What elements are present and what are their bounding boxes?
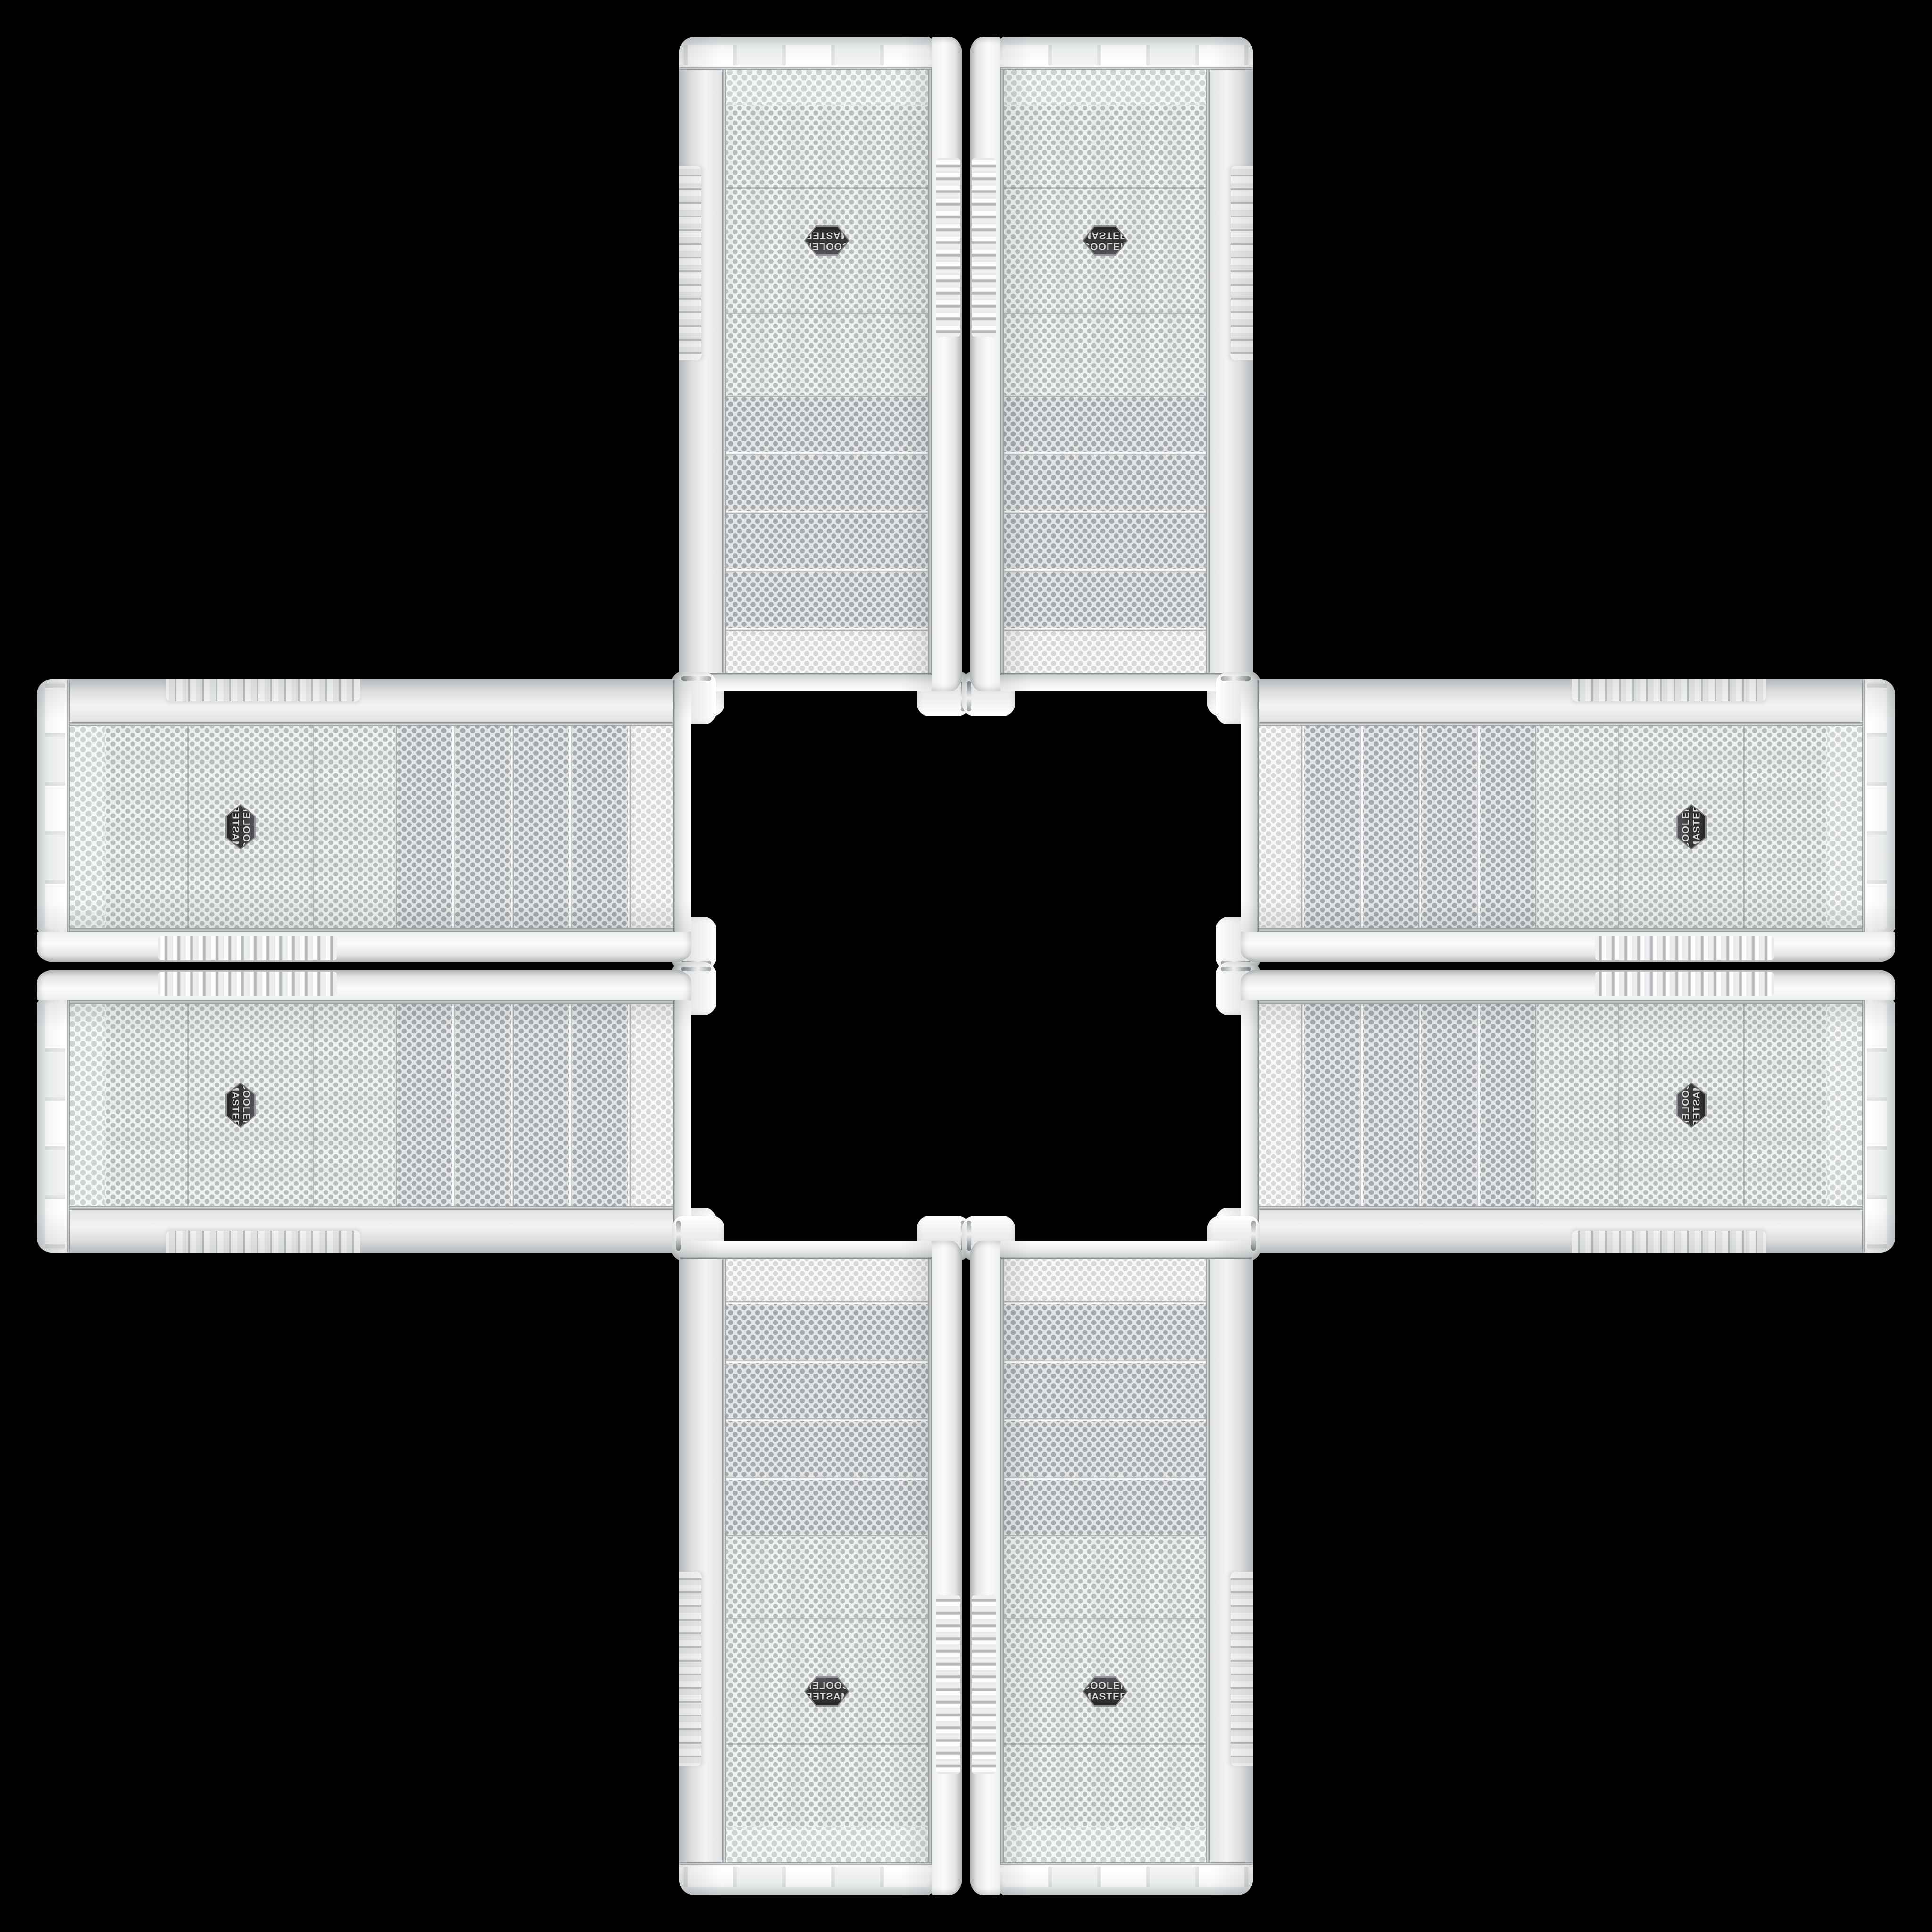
chrome-trim-right: [722, 64, 726, 678]
chrome-trim-left: [1000, 64, 1004, 678]
chrome-trim-right: [1206, 1254, 1210, 1868]
brand-line1: COOLER: [1681, 1083, 1691, 1128]
lower-mesh-panel: COOLER MASTER: [1537, 726, 1827, 928]
chrome-trim-left: [928, 64, 932, 678]
drive-bay-cover: [1004, 1303, 1206, 1361]
cooler-master-logo-badge: COOLER MASTER: [1083, 1676, 1128, 1707]
top-bezel: [1241, 1000, 1257, 1253]
pc-case-right-top: COOLER MASTER: [1241, 679, 1895, 962]
mesh-seam: [726, 1618, 928, 1619]
cooler-master-logo-icon: COOLER MASTER: [1084, 227, 1126, 254]
side-panel-sliver: [970, 1241, 1001, 1895]
side-panel-sliver: [931, 37, 962, 691]
bay-separator: [1301, 726, 1304, 928]
lower-mesh-panel: COOLER MASTER: [1537, 1004, 1827, 1206]
top-mesh-strip: [726, 1254, 928, 1303]
brand-line2: MASTER: [1083, 1692, 1128, 1702]
mesh-seam: [1743, 1004, 1745, 1206]
front-mesh-panel: COOLER MASTER: [1004, 1254, 1206, 1868]
drive-bay-cover: [1361, 726, 1420, 928]
side-grip-ridges: [158, 936, 337, 960]
case-front-body: COOLER MASTER: [679, 1241, 932, 1895]
chrome-trim-right: [64, 722, 678, 726]
pc-case-left-bottom: COOLER MASTER: [37, 970, 691, 1253]
case-front-body: COOLER MASTER: [1000, 1241, 1253, 1895]
lower-mesh-panel: COOLER MASTER: [105, 726, 395, 928]
drive-bay-cover: [726, 1361, 928, 1420]
front-bezel-column: [64, 679, 678, 722]
case-front-body: COOLER MASTER: [1241, 1000, 1895, 1253]
bottom-bezel: [1865, 1000, 1895, 1253]
bay-separator: [1477, 1004, 1480, 1206]
chrome-trim-right: [1254, 722, 1868, 726]
bay-separator: [628, 1004, 631, 1206]
side-grip-ridges: [972, 1595, 996, 1774]
bay-separator: [1004, 1477, 1206, 1480]
collage-stage: COOLER MASTER: [0, 0, 1932, 1932]
side-panel-sliver: [970, 37, 1001, 691]
front-bezel-column: [1210, 1254, 1253, 1868]
bottom-bezel: [37, 1000, 67, 1253]
bay-separator: [1360, 1004, 1363, 1206]
side-panel-sliver: [1241, 931, 1895, 962]
bay-separator: [1004, 452, 1206, 455]
bay-separator: [726, 569, 928, 572]
case-front-body: COOLER MASTER: [37, 679, 691, 932]
brand-line1: COOLER: [241, 804, 251, 849]
bay-separator: [628, 726, 631, 928]
front-mesh-panel: COOLER MASTER: [1254, 726, 1868, 928]
brand-line1: COOLER: [804, 1681, 849, 1691]
mesh-seam: [1004, 1618, 1206, 1619]
chrome-trim-left: [64, 1000, 678, 1004]
bay-separator: [1004, 569, 1206, 572]
drive-bay-cover: [1004, 1420, 1206, 1478]
case-front-body: COOLER MASTER: [37, 1000, 691, 1253]
brand-line2: MASTER: [1083, 230, 1128, 241]
bay-separator: [726, 628, 928, 631]
front-bezel-column: [1254, 1210, 1868, 1253]
side-grip-ridges: [1595, 972, 1774, 996]
drive-bay-cover: [1478, 726, 1537, 928]
grip-ribs: [1572, 1231, 1766, 1253]
brand-line1: COOLER: [1681, 804, 1691, 849]
case-slot-left-top: COOLER MASTER: [37, 679, 691, 962]
bay-separator: [1004, 1360, 1206, 1363]
pc-case-bottom-left: COOLER MASTER: [679, 1241, 962, 1895]
grip-ribs: [679, 166, 701, 360]
cooler-master-logo-badge: COOLER MASTER: [225, 1083, 256, 1128]
front-mesh-panel: COOLER MASTER: [1254, 1004, 1868, 1206]
bay-separator: [1360, 726, 1363, 928]
bay-separator: [1418, 1004, 1421, 1206]
cooler-master-logo-icon: COOLER MASTER: [1678, 806, 1705, 848]
bay-separator: [511, 1004, 514, 1206]
drive-bay-cover: [1004, 571, 1206, 629]
drive-bay-cover: [1303, 1004, 1361, 1206]
drive-bay-cover: [726, 454, 928, 512]
bay-separator: [452, 1004, 455, 1206]
top-mesh-strip: [1254, 1004, 1303, 1206]
bay-separator: [726, 1477, 928, 1480]
top-bezel: [1000, 1241, 1253, 1257]
mesh-seam: [187, 726, 189, 928]
top-bezel: [1241, 679, 1257, 932]
drive-bay-cover: [726, 1478, 928, 1537]
cooler-master-logo-badge: COOLER MASTER: [1083, 225, 1128, 256]
bottom-mesh-band: [726, 64, 928, 105]
front-mesh-panel: COOLER MASTER: [726, 64, 928, 678]
front-bezel-column: [64, 1210, 678, 1253]
bay-separator: [1004, 511, 1206, 514]
bay-separator: [569, 1004, 572, 1206]
case-slot-bottom-left: COOLER MASTER: [679, 1241, 962, 1895]
brand-line1: COOLER: [804, 241, 849, 251]
grip-ribs: [166, 1231, 360, 1253]
brand-line1: COOLER: [1083, 241, 1128, 251]
bottom-bezel: [1000, 37, 1253, 67]
drive-bay-cover: [1361, 1004, 1420, 1206]
mesh-seam: [187, 1004, 189, 1206]
front-bezel-column: [1254, 679, 1868, 722]
lower-mesh-panel: COOLER MASTER: [726, 1537, 928, 1827]
drive-bay-cover: [454, 1004, 512, 1206]
side-panel-sliver: [37, 970, 691, 1001]
bay-separator: [726, 511, 928, 514]
chrome-trim-left: [928, 1254, 932, 1868]
bay-separator: [726, 1360, 928, 1363]
brand-line2: MASTER: [230, 805, 241, 849]
top-mesh-strip: [629, 1004, 678, 1206]
cooler-master-logo-badge: COOLER MASTER: [804, 225, 849, 256]
front-bezel-column: [679, 1254, 722, 1868]
bottom-mesh-band: [64, 726, 105, 928]
bottom-mesh-band: [1004, 64, 1206, 105]
pc-case-top-left: COOLER MASTER: [679, 37, 962, 691]
drive-bay-cover: [726, 395, 928, 454]
top-mesh-strip: [726, 629, 928, 678]
drive-bay-cover: [726, 512, 928, 571]
top-mesh-strip: [1004, 629, 1206, 678]
cooler-master-logo-badge: COOLER MASTER: [225, 804, 256, 849]
grip-ribs: [679, 1572, 701, 1766]
lower-mesh-panel: COOLER MASTER: [1004, 1537, 1206, 1827]
drive-bay-cover: [512, 726, 571, 928]
drive-bay-cover: [726, 1420, 928, 1478]
case-slot-top-right: COOLER MASTER: [970, 37, 1253, 691]
drive-bay-cover: [571, 1004, 629, 1206]
brand-line1: COOLER: [1083, 1681, 1128, 1691]
case-slot-bottom-right: COOLER MASTER: [970, 1241, 1253, 1895]
cooler-master-logo-icon: COOLER MASTER: [227, 806, 254, 848]
cooler-master-logo-icon: COOLER MASTER: [1678, 1084, 1705, 1126]
case-slot-right-bottom: COOLER MASTER: [1241, 970, 1895, 1253]
side-grip-ridges: [936, 1595, 960, 1774]
side-grip-ridges: [1595, 936, 1774, 960]
grip-ribs: [1572, 679, 1766, 701]
cooler-master-logo-icon: COOLER MASTER: [806, 227, 848, 254]
case-slot-left-bottom: COOLER MASTER: [37, 970, 691, 1253]
bay-separator: [1477, 726, 1480, 928]
drive-bay-cover: [726, 1303, 928, 1361]
bay-separator: [511, 726, 514, 928]
front-mesh-panel: COOLER MASTER: [64, 726, 678, 928]
chrome-trim-right: [1254, 1206, 1868, 1210]
drive-bay-cover: [1478, 1004, 1537, 1206]
bay-separator: [1004, 1301, 1206, 1304]
top-mesh-strip: [1004, 1254, 1206, 1303]
top-bezel: [675, 679, 691, 932]
lower-mesh-panel: COOLER MASTER: [1004, 105, 1206, 395]
drive-bay-cover: [1004, 512, 1206, 571]
brand-line2: MASTER: [230, 1083, 241, 1128]
mesh-seam: [1618, 1004, 1619, 1206]
bay-separator: [1004, 628, 1206, 631]
cooler-master-logo-badge: COOLER MASTER: [804, 1676, 849, 1707]
mesh-seam: [1743, 726, 1745, 928]
case-front-body: COOLER MASTER: [1000, 37, 1253, 691]
front-mesh-panel: COOLER MASTER: [64, 1004, 678, 1206]
bay-separator: [569, 726, 572, 928]
chrome-trim-left: [1254, 1000, 1868, 1004]
drive-bay-cover: [454, 726, 512, 928]
bottom-bezel: [1000, 1865, 1253, 1895]
bottom-bezel: [679, 1865, 932, 1895]
drive-bay-cover: [1004, 1478, 1206, 1537]
bottom-bezel: [37, 679, 67, 932]
bottom-mesh-band: [64, 1004, 105, 1206]
drive-bay-cover: [395, 1004, 454, 1206]
cooler-master-logo-badge: COOLER MASTER: [1676, 804, 1707, 849]
front-bezel-column: [1210, 64, 1253, 678]
pc-case-bottom-right: COOLER MASTER: [970, 1241, 1253, 1895]
front-mesh-panel: COOLER MASTER: [1004, 64, 1206, 678]
top-bezel: [675, 1000, 691, 1253]
mesh-seam: [726, 187, 928, 189]
chrome-trim-left: [1254, 928, 1868, 932]
drive-bay-cover: [1420, 726, 1478, 928]
front-bezel-column: [679, 64, 722, 678]
front-mesh-panel: COOLER MASTER: [726, 1254, 928, 1868]
side-grip-ridges: [936, 158, 960, 337]
pc-case-top-right: COOLER MASTER: [970, 37, 1253, 691]
mesh-seam: [313, 1004, 314, 1206]
drive-bay-cover: [512, 1004, 571, 1206]
case-front-body: COOLER MASTER: [679, 37, 932, 691]
drive-bay-cover: [726, 571, 928, 629]
drive-bay-cover: [1303, 726, 1361, 928]
cooler-master-logo-badge: COOLER MASTER: [1676, 1083, 1707, 1128]
brand-line2: MASTER: [1692, 1083, 1702, 1128]
case-front-body: COOLER MASTER: [1241, 679, 1895, 932]
chrome-trim-right: [1206, 64, 1210, 678]
brand-line1: COOLER: [241, 1083, 251, 1128]
cooler-master-logo-icon: COOLER MASTER: [1084, 1678, 1126, 1705]
top-bezel: [1000, 675, 1253, 691]
drive-bay-cover: [395, 726, 454, 928]
top-bezel: [679, 1241, 932, 1257]
mesh-seam: [1004, 1743, 1206, 1745]
cooler-master-logo-icon: COOLER MASTER: [806, 1678, 848, 1705]
top-mesh-strip: [1254, 726, 1303, 928]
grip-ribs: [1231, 166, 1253, 360]
cooler-master-logo-icon: COOLER MASTER: [227, 1084, 254, 1126]
grip-ribs: [1231, 1572, 1253, 1766]
mesh-seam: [1004, 187, 1206, 189]
lower-mesh-panel: COOLER MASTER: [726, 105, 928, 395]
side-grip-ridges: [972, 158, 996, 337]
side-panel-sliver: [1241, 970, 1895, 1001]
grip-ribs: [166, 679, 360, 701]
case-slot-right-top: COOLER MASTER: [1241, 679, 1895, 962]
bay-separator: [1301, 1004, 1304, 1206]
pc-case-right-bottom: COOLER MASTER: [1241, 970, 1895, 1253]
brand-line2: MASTER: [1692, 805, 1702, 849]
bottom-bezel: [679, 37, 932, 67]
drive-bay-cover: [1004, 395, 1206, 454]
drive-bay-cover: [1420, 1004, 1478, 1206]
drive-bay-cover: [1004, 454, 1206, 512]
case-slot-top-left: COOLER MASTER: [679, 37, 962, 691]
lower-mesh-panel: COOLER MASTER: [105, 1004, 395, 1206]
chrome-trim-right: [64, 1206, 678, 1210]
bay-separator: [726, 1301, 928, 1304]
mesh-seam: [726, 313, 928, 314]
pc-case-left-top: COOLER MASTER: [37, 679, 691, 962]
bay-separator: [726, 1418, 928, 1421]
brand-line2: MASTER: [805, 230, 849, 241]
chrome-trim-left: [64, 928, 678, 932]
bay-separator: [1004, 1418, 1206, 1421]
drive-bay-cover: [571, 726, 629, 928]
mesh-seam: [1004, 313, 1206, 314]
bay-separator: [1418, 726, 1421, 928]
top-mesh-strip: [629, 726, 678, 928]
mesh-seam: [726, 1743, 928, 1745]
drive-bay-cover: [1004, 1361, 1206, 1420]
side-panel-sliver: [37, 931, 691, 962]
bay-separator: [726, 452, 928, 455]
bottom-bezel: [1865, 679, 1895, 932]
top-bezel: [679, 675, 932, 691]
mesh-seam: [313, 726, 314, 928]
chrome-trim-right: [722, 1254, 726, 1868]
brand-line2: MASTER: [805, 1692, 849, 1702]
side-grip-ridges: [158, 972, 337, 996]
side-panel-sliver: [931, 1241, 962, 1895]
mesh-seam: [1618, 726, 1619, 928]
chrome-trim-left: [1000, 1254, 1004, 1868]
bay-separator: [452, 726, 455, 928]
